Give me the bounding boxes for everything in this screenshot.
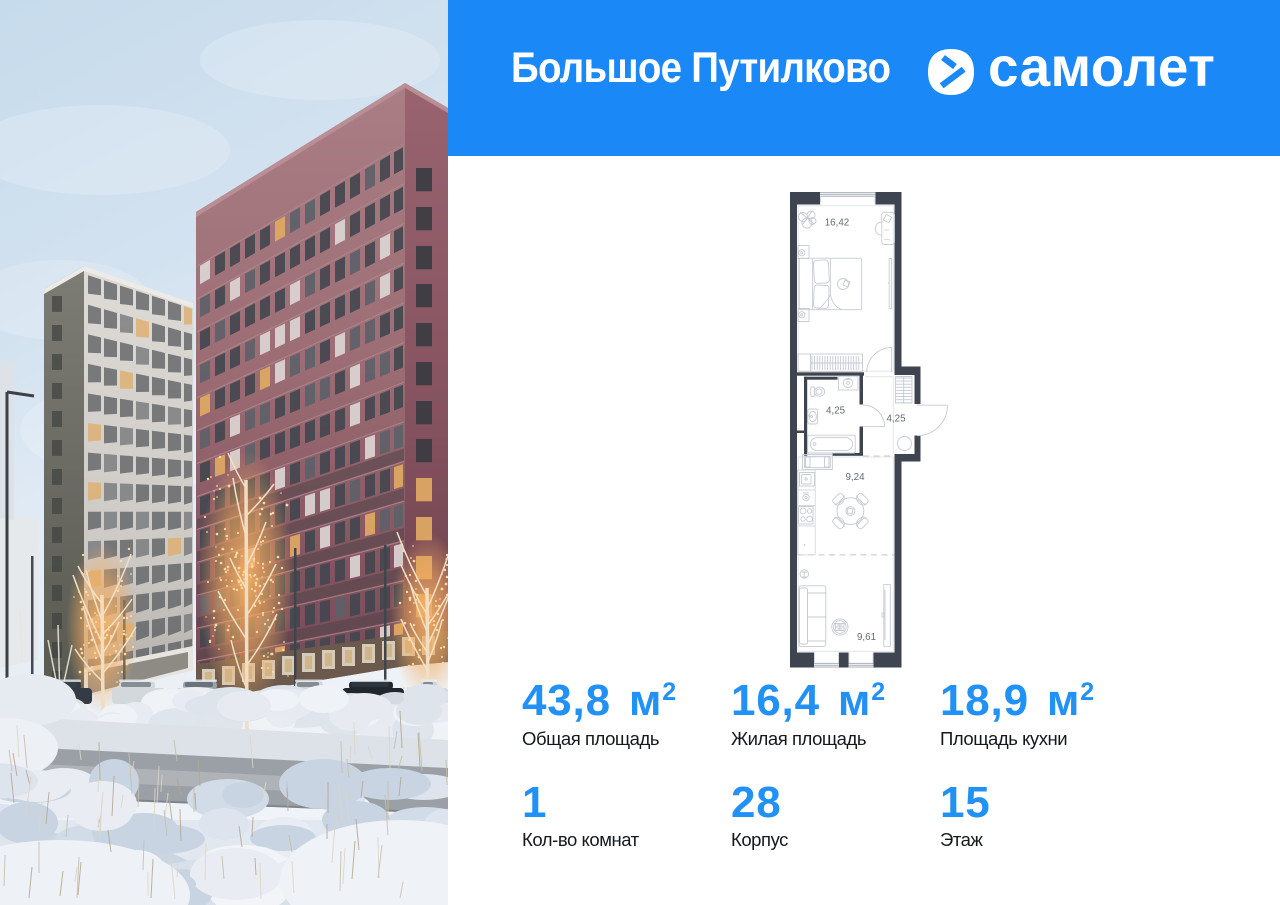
svg-text:4,25: 4,25 bbox=[826, 406, 846, 417]
svg-text:16,42: 16,42 bbox=[825, 218, 850, 229]
svg-text:4,25: 4,25 bbox=[886, 414, 906, 425]
svg-text:9,61: 9,61 bbox=[857, 632, 876, 643]
svg-text:9,24: 9,24 bbox=[845, 472, 865, 483]
